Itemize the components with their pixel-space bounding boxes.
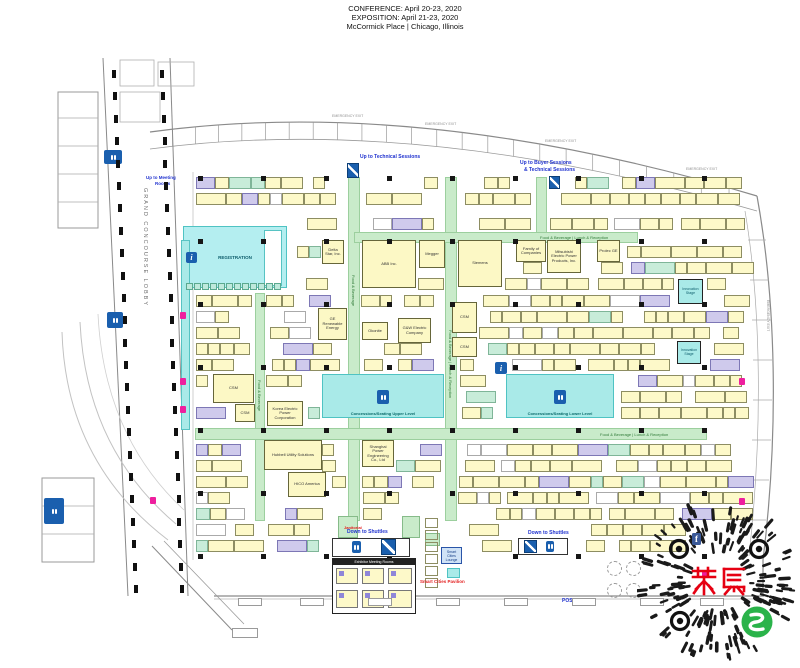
- exhibitor-booth: HICO America: [288, 472, 326, 497]
- exhibit-booth: [473, 476, 499, 488]
- exhibit-booth: [697, 246, 723, 258]
- exhibit-booth: [469, 524, 499, 536]
- exhibit-booth: [364, 359, 383, 371]
- exhibit-booth: [196, 375, 208, 387]
- registration-area: REGISTRATION: [183, 226, 287, 288]
- door-mark: [169, 294, 173, 302]
- exhibit-booth: [586, 540, 605, 552]
- exhibit-booth: [297, 508, 323, 520]
- emergency-exit-label: EMERGENCY EXIT: [686, 167, 717, 171]
- exhibit-booth: [555, 508, 574, 520]
- exhibit-booth: [640, 407, 659, 419]
- exhibit-booth: [610, 295, 640, 307]
- exhibit-booth: [270, 327, 289, 339]
- door-mark: [121, 272, 125, 280]
- exhibit-booth: [728, 311, 744, 323]
- exhibit-booth: [420, 295, 434, 307]
- exhibit-booth: [554, 343, 570, 355]
- exhibit-booth: [490, 311, 502, 323]
- exhibit-booth: [584, 295, 610, 307]
- exhibit-booth: [714, 375, 730, 387]
- structural-column: [324, 365, 329, 370]
- exhibit-booth: [212, 460, 242, 472]
- exhibit-booth: [672, 327, 694, 339]
- door-mark: [180, 585, 184, 593]
- exhibit-booth: [242, 193, 258, 205]
- exhibit-booth: [309, 246, 321, 258]
- structural-column: [576, 239, 581, 244]
- door-mark: [166, 227, 170, 235]
- structural-column: [324, 176, 329, 181]
- door-mark: [126, 406, 130, 414]
- exhibit-booth: [296, 359, 310, 371]
- structural-column: [513, 176, 518, 181]
- exhibit-booth: [481, 407, 493, 419]
- exhibit-booth: [723, 246, 742, 258]
- exhibit-booth: [424, 177, 438, 189]
- structural-column: [450, 239, 455, 244]
- structural-column: [639, 428, 644, 433]
- exhibit-booth: [234, 540, 264, 552]
- registration-label: REGISTRATION: [218, 255, 252, 260]
- exhibit-booth: [645, 262, 675, 274]
- structural-column: [450, 428, 455, 433]
- exhibit-booth: [210, 508, 226, 520]
- door-mark: [116, 160, 120, 168]
- exhibit-booth: [726, 177, 742, 189]
- innovation-stage-1: Innovation Stage: [678, 279, 703, 304]
- shuttle-access-1: [332, 538, 410, 557]
- emergency-exit-label: EMERGENCY EXIT: [332, 114, 363, 118]
- exhibitor-booth: Megger: [419, 240, 445, 268]
- exhibit-booth: [638, 375, 657, 387]
- structural-column: [324, 428, 329, 433]
- exhibit-booth: [525, 476, 539, 488]
- exhibit-booth: [567, 278, 589, 290]
- exhibit-booth: [728, 476, 754, 488]
- door-mark: [163, 160, 167, 168]
- exhibit-booth: [723, 407, 735, 419]
- exhibit-booth: [631, 262, 645, 274]
- exhibit-booth: [706, 262, 732, 274]
- door-mark: [177, 495, 181, 503]
- structural-column: [639, 491, 644, 496]
- exhibit-booth: [519, 343, 535, 355]
- exhibit-booth: [285, 508, 297, 520]
- exhibit-booth: [624, 278, 643, 290]
- exhibit-booth: [322, 460, 336, 472]
- exhibit-booth: [598, 278, 624, 290]
- smart-cities-booth: [425, 542, 438, 552]
- exhibit-booth: [505, 218, 531, 230]
- structural-column: [261, 239, 266, 244]
- door-mark: [161, 92, 165, 100]
- first-aid-marker: [150, 497, 156, 504]
- structural-column: [198, 239, 203, 244]
- door-mark: [133, 563, 137, 571]
- up-to-meeting-label-1: Up to Meeting: [146, 175, 176, 181]
- door-mark: [172, 383, 176, 391]
- door-mark: [113, 92, 117, 100]
- door-mark: [170, 316, 174, 324]
- exhibit-booth: [700, 218, 726, 230]
- aisle-food-beverage-4: [536, 177, 547, 233]
- smart-cities-kiosk: [447, 568, 460, 578]
- floorplan-page: CONFERENCE: April 20-23, 2020 EXPOSITION…: [0, 0, 800, 668]
- exhibit-booth: [420, 444, 442, 456]
- grand-concourse-label: GRAND CONCOURSE LOBBY: [142, 188, 148, 307]
- exhibit-booth: [322, 444, 334, 456]
- exhibit-booth: [418, 278, 444, 290]
- exhibit-booth: [694, 327, 710, 339]
- exhibit-booth: [541, 278, 567, 290]
- escalator-icon: [347, 163, 359, 178]
- exhibit-booth: [630, 444, 649, 456]
- exhibit-booth: [567, 311, 589, 323]
- exhibit-booth: [229, 177, 251, 189]
- exhibit-booth: [629, 193, 645, 205]
- up-to-technical-label: Up to Technical Sessions: [360, 155, 420, 161]
- exhibit-booth: [313, 343, 332, 355]
- exhibit-booth: [304, 193, 320, 205]
- exhibit-booth: [659, 407, 681, 419]
- exhibit-booth: [307, 218, 337, 230]
- exhibit-booth: [687, 262, 706, 274]
- exhibit-booth: [596, 492, 618, 504]
- exhibitor-booth: CSM: [213, 374, 254, 403]
- door-mark: [122, 294, 126, 302]
- structural-column: [513, 239, 518, 244]
- structural-column: [450, 491, 455, 496]
- blue-f-icon: f: [692, 533, 701, 545]
- exhibit-booth: [640, 218, 659, 230]
- exhibit-booth: [196, 327, 218, 339]
- exhibit-booth: [621, 407, 640, 419]
- door-mark: [120, 249, 124, 257]
- door-mark: [178, 540, 182, 548]
- exhibit-booth: [675, 262, 687, 274]
- structural-column: [513, 428, 518, 433]
- structural-column: [702, 428, 707, 433]
- exhibit-booth: [460, 359, 474, 371]
- structural-column: [639, 239, 644, 244]
- exhibit-booth: [574, 327, 593, 339]
- entrance-vestibule: [238, 598, 262, 606]
- exhibit-booth: [537, 311, 567, 323]
- first-aid-marker: [180, 406, 186, 413]
- structural-column: [513, 302, 518, 307]
- exhibit-booth: [212, 359, 234, 371]
- exhibit-booth: [502, 311, 521, 323]
- exhibit-booth: [542, 327, 558, 339]
- exhibit-booth: [644, 476, 660, 488]
- exhibit-booth: [704, 177, 726, 189]
- door-mark: [160, 70, 164, 78]
- structural-column: [198, 554, 203, 559]
- exhibit-booth: [422, 218, 434, 230]
- structural-column: [702, 302, 707, 307]
- exhibitor-booth: Prolec GE: [597, 240, 620, 262]
- structural-column: [513, 365, 518, 370]
- restroom-icon: [546, 541, 554, 552]
- juzhan-qr-watermark: f: [637, 502, 800, 668]
- exhibit-booth: [265, 177, 281, 189]
- door-mark: [134, 585, 138, 593]
- structural-column: [261, 428, 266, 433]
- exhibit-booth: [686, 476, 716, 488]
- exhibit-booth: [479, 218, 505, 230]
- structural-column: [702, 176, 707, 181]
- exhibit-booth: [510, 508, 522, 520]
- exhibit-booth: [459, 476, 473, 488]
- exhibit-booth: [266, 375, 288, 387]
- door-mark: [112, 70, 116, 78]
- exhibit-booth: [561, 193, 591, 205]
- exhibit-booth: [570, 343, 600, 355]
- exhibit-booth: [706, 460, 732, 472]
- exhibit-booth: [308, 407, 320, 419]
- exhibit-booth: [297, 246, 309, 258]
- structural-column: [387, 365, 392, 370]
- exhibit-booth: [640, 295, 670, 307]
- exhibit-booth: [484, 177, 498, 189]
- exhibitor-booth: GE Renewable Energy: [318, 308, 347, 340]
- door-mark: [117, 182, 121, 190]
- exhibit-booth: [666, 391, 682, 403]
- emergency-exit-label: EMERGENCY EXIT: [425, 122, 456, 126]
- structural-column: [387, 491, 392, 496]
- exhibit-booth: [208, 492, 230, 504]
- exhibit-booth: [493, 193, 515, 205]
- exhibit-booth: [384, 343, 400, 355]
- door-mark: [130, 495, 134, 503]
- exhibit-booth: [643, 278, 662, 290]
- smart-cities-pavilion-label: Smart Cities Pavilion: [420, 579, 465, 584]
- exhibitor-booth: CSM: [452, 302, 477, 333]
- exhibit-booth: [618, 492, 634, 504]
- exhibit-booth: [499, 476, 525, 488]
- exhibit-booth: [660, 476, 686, 488]
- exhibit-booth: [288, 375, 302, 387]
- door-mark: [131, 518, 135, 526]
- up-to-buyer-label-1: Up to Buyer Sessions: [520, 161, 572, 167]
- meeting-room: [336, 590, 358, 608]
- door-mark: [125, 383, 129, 391]
- exhibit-booth: [724, 295, 750, 307]
- structural-column: [450, 365, 455, 370]
- exhibit-booth: [718, 193, 740, 205]
- exhibit-booth: [477, 492, 489, 504]
- door-mark: [128, 451, 132, 459]
- registration-kiosk: [250, 283, 257, 290]
- exhibit-booth: [235, 524, 254, 536]
- exhibit-booth: [374, 476, 388, 488]
- exhibit-booth: [196, 476, 226, 488]
- exhibit-booth: [238, 295, 252, 307]
- exhibit-booth: [614, 359, 628, 371]
- exhibit-booth: [284, 359, 296, 371]
- meeting-room: [388, 568, 412, 584]
- exhibit-booth: [281, 177, 303, 189]
- exhibit-booth: [641, 246, 671, 258]
- exhibit-booth: [208, 540, 234, 552]
- entrance-vestibule: [368, 598, 392, 606]
- exhibit-booth: [589, 311, 611, 323]
- poster-table: [607, 561, 622, 576]
- structural-column: [513, 491, 518, 496]
- exhibit-booth: [196, 460, 212, 472]
- exhibit-booth: [196, 311, 215, 323]
- exhibit-booth: [681, 407, 707, 419]
- aisle-label: Food & Beverage | Lunch & Reception: [600, 432, 668, 437]
- exhibit-booth: [656, 311, 668, 323]
- exhibit-booth: [533, 444, 552, 456]
- exhibit-booth: [707, 278, 726, 290]
- door-mark: [173, 406, 177, 414]
- exhibit-booth: [320, 193, 336, 205]
- exhibit-booth: [498, 177, 510, 189]
- registration-kiosk: [242, 283, 249, 290]
- exhibit-booth: [522, 508, 536, 520]
- door-mark: [162, 115, 166, 123]
- exhibit-booth: [505, 278, 527, 290]
- exhibit-booth: [611, 311, 623, 323]
- registration-kiosk: [226, 283, 233, 290]
- info-icon: i: [186, 252, 197, 263]
- exhibit-booth: [732, 262, 754, 274]
- exhibit-booth: [481, 444, 507, 456]
- exhibit-booth: [623, 327, 653, 339]
- structural-column: [261, 176, 266, 181]
- exhibit-booth: [523, 262, 542, 274]
- smart-cities-booth: [425, 566, 438, 576]
- exhibit-booth: [363, 508, 382, 520]
- first-aid-marker: [180, 312, 186, 319]
- exhibit-booth: [479, 327, 509, 339]
- exhibit-booth: [640, 391, 666, 403]
- registration-kiosk: [186, 283, 193, 290]
- exhibit-booth: [507, 492, 533, 504]
- exhibit-booth: [196, 343, 208, 355]
- exhibit-booth: [332, 476, 346, 488]
- exhibit-booth: [412, 476, 434, 488]
- exhibit-booth: [671, 246, 697, 258]
- exhibitor-booth: CSM: [235, 404, 255, 422]
- exhibit-booth: [601, 262, 623, 274]
- exhibit-booth: [591, 193, 610, 205]
- concessions-lower-label: Concessions/Seating Lower Level: [507, 411, 613, 416]
- poster-table: [607, 583, 622, 598]
- exhibit-booth: [659, 218, 673, 230]
- seating-block: [402, 516, 420, 538]
- entrance-vestibule: [504, 598, 528, 606]
- door-mark: [132, 540, 136, 548]
- structural-column: [702, 239, 707, 244]
- exhibit-booth: [726, 218, 745, 230]
- smart-cities-booth: [425, 554, 438, 564]
- exhibit-booth: [591, 476, 603, 488]
- exhibit-booth: [668, 311, 684, 323]
- exhibit-booth: [212, 295, 238, 307]
- janitorial-label: Janitorial: [344, 525, 362, 530]
- exhibitor-booth: Mitsubishi Electric Power Products, Inc.: [547, 240, 581, 273]
- exhibit-booth: [684, 311, 706, 323]
- exhibit-booth: [208, 444, 222, 456]
- structural-column: [639, 302, 644, 307]
- structural-column: [261, 554, 266, 559]
- exhibit-booth: [531, 460, 550, 472]
- exhibit-booth: [607, 524, 623, 536]
- exhibit-booth: [638, 460, 657, 472]
- structural-column: [324, 302, 329, 307]
- down-to-shuttles-label: Down to Shuttles: [347, 530, 388, 536]
- exhibit-booth: [266, 295, 282, 307]
- info-icon: i: [495, 362, 507, 374]
- escalator-icon: [524, 540, 537, 553]
- exhibit-booth: [220, 343, 234, 355]
- structural-column: [324, 554, 329, 559]
- structural-column: [576, 491, 581, 496]
- exhibit-booth: [489, 492, 501, 504]
- registration-kiosk: [202, 283, 209, 290]
- exhibit-booth: [687, 460, 706, 472]
- entrance-vestibule: [572, 598, 596, 606]
- meeting-room: [336, 568, 358, 584]
- structural-column: [639, 365, 644, 370]
- registration-kiosk: [194, 283, 201, 290]
- exhibit-booth: [509, 327, 523, 339]
- exhibit-booth: [507, 343, 519, 355]
- exhibit-booth: [715, 444, 731, 456]
- walkway-end: [232, 628, 258, 638]
- exhibitor-booth: ABB Inc.: [362, 240, 416, 288]
- concessions-upper-label: Concessions/Seating Upper Level: [323, 411, 443, 416]
- first-aid-marker: [739, 378, 745, 385]
- door-mark: [118, 204, 122, 212]
- exhibit-booth: [277, 540, 307, 552]
- restroom-icon: [352, 541, 361, 553]
- exhibit-booth: [614, 218, 640, 230]
- door-mark: [174, 428, 178, 436]
- structural-column: [639, 176, 644, 181]
- exhibit-booth: [196, 407, 226, 419]
- exhibit-booth: [542, 359, 554, 371]
- restroom-icon: [554, 390, 566, 404]
- exhibitor-booth: Hubbell Utility Solutions: [264, 440, 322, 470]
- door-mark: [129, 473, 133, 481]
- registration-walkway: [181, 240, 190, 430]
- exhibit-booth: [404, 295, 420, 307]
- restroom-icon: [107, 312, 123, 328]
- exhibit-booth: [547, 492, 559, 504]
- exhibit-booth: [657, 375, 683, 387]
- door-mark: [124, 361, 128, 369]
- exhibit-booth: [552, 444, 578, 456]
- exhibit-booth: [578, 444, 608, 456]
- escalator-icon: [381, 539, 396, 555]
- exhibit-booth: [396, 460, 415, 472]
- exhibit-booth: [196, 524, 226, 536]
- structural-column: [450, 302, 455, 307]
- structural-column: [450, 176, 455, 181]
- structural-column: [198, 176, 203, 181]
- door-mark: [171, 361, 175, 369]
- exhibit-booth: [707, 407, 723, 419]
- exhibit-booth: [208, 343, 220, 355]
- exhibit-booth: [706, 311, 728, 323]
- exhibit-booth: [558, 327, 574, 339]
- structural-column: [198, 365, 203, 370]
